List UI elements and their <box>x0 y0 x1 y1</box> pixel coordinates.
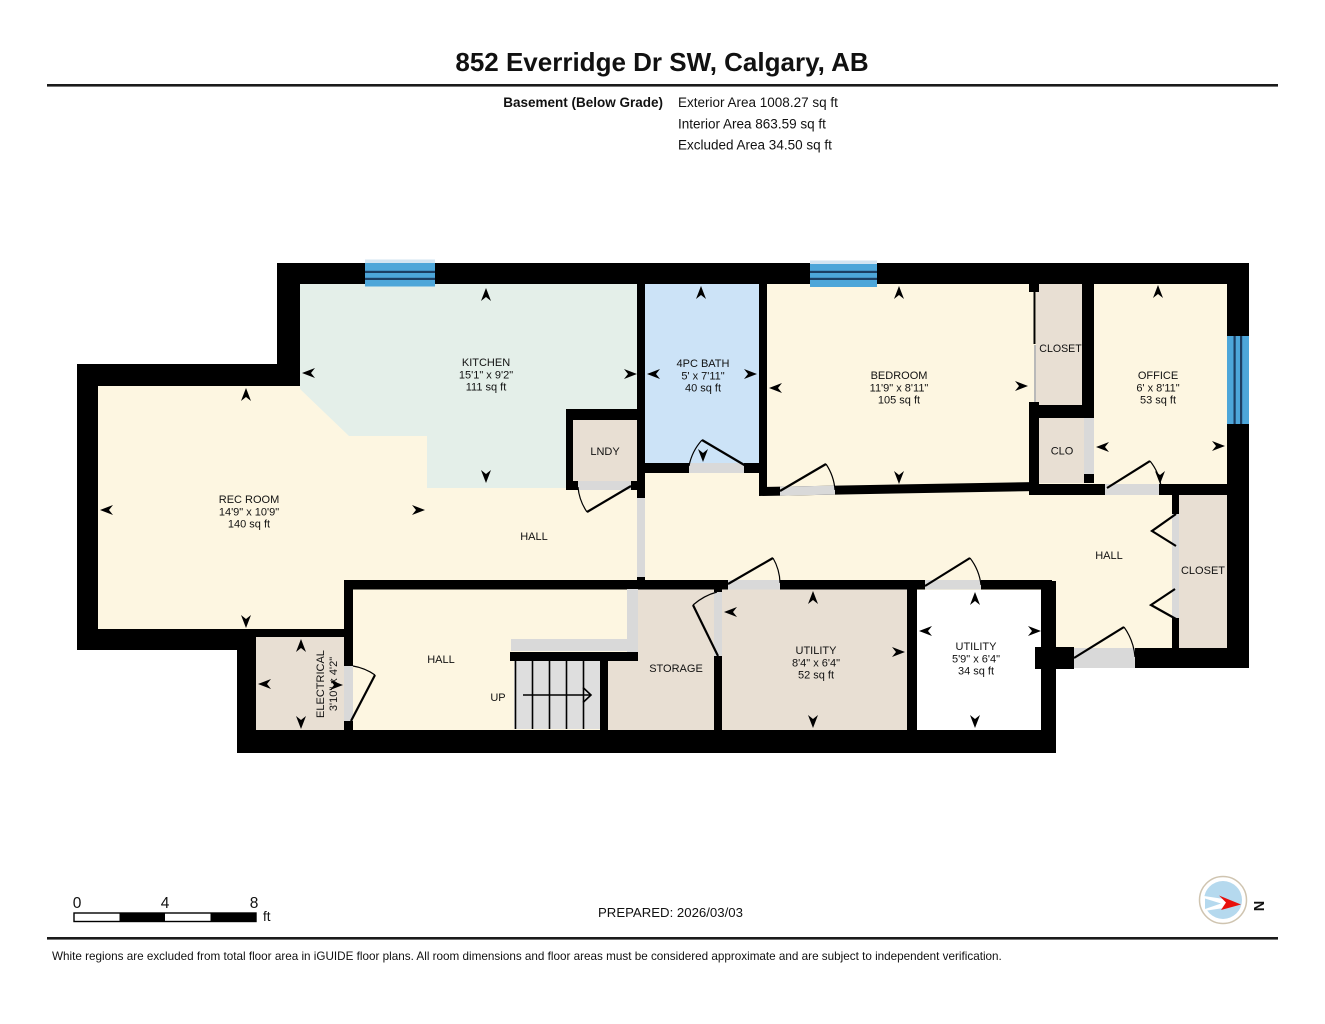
svg-text:Basement (Below Grade): Basement (Below Grade) <box>503 95 663 110</box>
svg-text:0: 0 <box>73 895 82 912</box>
svg-text:White regions are excluded fro: White regions are excluded from total fl… <box>52 950 1002 963</box>
svg-text:4: 4 <box>161 895 170 912</box>
svg-text:CLOSET: CLOSET <box>1181 565 1225 577</box>
svg-text:UTILITY: UTILITY <box>956 641 998 653</box>
svg-text:34 sq ft: 34 sq ft <box>958 666 994 678</box>
svg-text:140 sq ft: 140 sq ft <box>228 519 270 531</box>
svg-text:ft: ft <box>263 909 271 924</box>
svg-text:Excluded Area 34.50 sq ft: Excluded Area 34.50 sq ft <box>678 138 832 153</box>
svg-text:KITCHEN: KITCHEN <box>462 357 510 369</box>
svg-text:40 sq ft: 40 sq ft <box>685 383 721 395</box>
svg-text:LNDY: LNDY <box>590 446 620 458</box>
svg-text:HALL: HALL <box>520 531 548 543</box>
svg-text:852 Everridge Dr SW, Calgary,: 852 Everridge Dr SW, Calgary, AB <box>455 47 868 77</box>
svg-text:ELECTRICAL: ELECTRICAL <box>315 650 327 718</box>
svg-text:REC ROOM: REC ROOM <box>219 494 280 506</box>
svg-text:UP: UP <box>490 692 505 704</box>
svg-text:14'9" x 10'9": 14'9" x 10'9" <box>219 506 279 518</box>
svg-text:HALL: HALL <box>427 654 455 666</box>
svg-text:N: N <box>1250 901 1266 911</box>
svg-text:8'4" x 6'4": 8'4" x 6'4" <box>792 657 840 669</box>
svg-text:105 sq ft: 105 sq ft <box>878 395 920 407</box>
svg-text:Interior Area 863.59 sq ft: Interior Area 863.59 sq ft <box>678 117 826 132</box>
svg-text:5'9" x 6'4": 5'9" x 6'4" <box>952 653 1000 665</box>
svg-text:5' x 7'11": 5' x 7'11" <box>681 370 724 382</box>
svg-text:4PC BATH: 4PC BATH <box>677 358 730 370</box>
svg-text:111 sq ft: 111 sq ft <box>466 382 507 394</box>
svg-text:6' x 8'11": 6' x 8'11" <box>1136 382 1179 394</box>
svg-text:Exterior Area 1008.27 sq ft: Exterior Area 1008.27 sq ft <box>678 95 838 110</box>
svg-text:53 sq ft: 53 sq ft <box>1140 395 1176 407</box>
svg-text:11'9" x 8'11": 11'9" x 8'11" <box>870 382 929 394</box>
svg-text:BEDROOM: BEDROOM <box>871 370 928 382</box>
svg-text:HALL: HALL <box>1095 550 1123 562</box>
svg-text:52 sq ft: 52 sq ft <box>798 670 834 682</box>
svg-text:15'1" x 9'2": 15'1" x 9'2" <box>459 369 513 381</box>
svg-text:PREPARED: 2026/03/03: PREPARED: 2026/03/03 <box>598 905 743 920</box>
svg-text:UTILITY: UTILITY <box>796 645 838 657</box>
svg-text:CLOSET: CLOSET <box>1039 343 1082 355</box>
svg-text:STORAGE: STORAGE <box>649 663 703 675</box>
svg-text:CLO: CLO <box>1051 446 1074 458</box>
svg-text:8: 8 <box>250 895 259 912</box>
svg-text:OFFICE: OFFICE <box>1138 370 1178 382</box>
